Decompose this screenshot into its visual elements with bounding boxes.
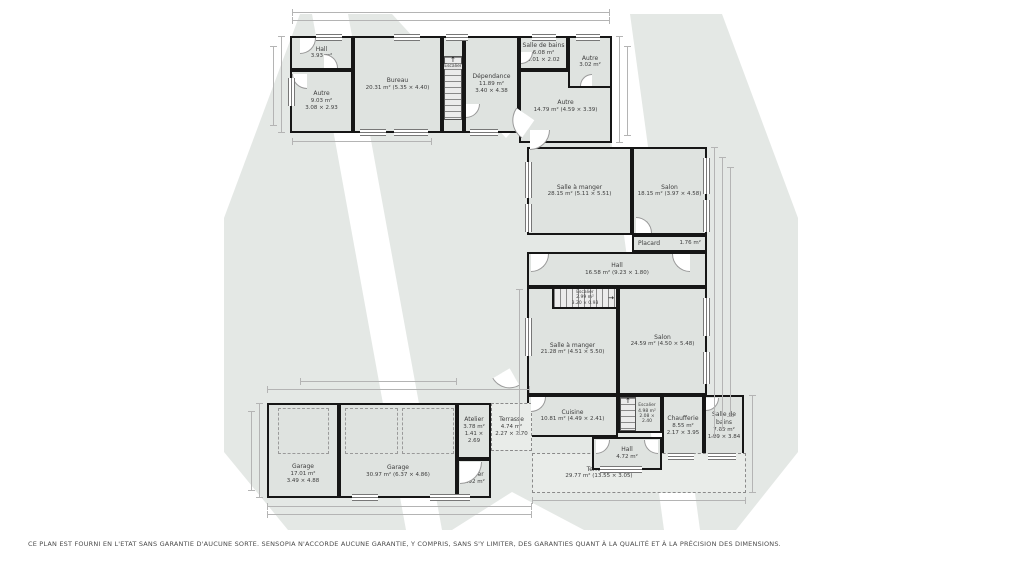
window	[470, 129, 498, 136]
dimension-line	[259, 403, 260, 498]
room-dims: 3.40 × 4.38	[475, 88, 508, 95]
room-label: Hall	[611, 262, 623, 270]
window	[703, 352, 710, 384]
room-label: Escalier	[576, 290, 594, 295]
room-area: 3.78 m²	[463, 424, 485, 431]
stairs-right-arrow-icon: →	[608, 295, 614, 302]
dimension-line	[730, 167, 731, 417]
room-label: Autre	[582, 55, 598, 63]
room-label: Bureau	[387, 77, 408, 85]
room-area: 3.02 m²	[579, 62, 601, 69]
room-label: Autre	[313, 90, 329, 98]
dimension-line	[627, 46, 628, 136]
room-area: 11.89 m²	[479, 81, 504, 88]
parking-spot-outline	[345, 408, 398, 454]
dimension-line	[722, 157, 723, 429]
room-area: 8.55 m²	[672, 423, 694, 430]
room-label: Garage	[387, 464, 409, 472]
room-area: 28.15 m² (5.11 × 5.51)	[548, 191, 612, 198]
room-terrasse-4: Terrasse4.74 m²2.27 × 2.70	[491, 403, 532, 451]
dimension-line	[273, 46, 274, 126]
sliding-door	[600, 466, 642, 473]
dimension-line	[532, 500, 746, 501]
dimension-line	[292, 141, 432, 142]
room-dims: 3.20 × 0.93	[572, 301, 599, 306]
window	[525, 318, 532, 356]
room-label: Cuisine	[562, 409, 584, 417]
dimension-line	[619, 36, 620, 143]
room-area: 21.28 m² (4.51 × 5.50)	[541, 349, 605, 356]
room-dims: 3.08 × 2.93	[305, 105, 338, 112]
dimension-line	[292, 20, 610, 21]
window	[394, 34, 420, 41]
room-area: 9.03 m²	[311, 98, 333, 105]
room-escalier-mid: Escalier2.99 m²3.20 × 0.93 →	[552, 287, 618, 309]
disclaimer-text: CE PLAN EST FOURNI EN L'ETAT SANS GARANT…	[28, 540, 1008, 548]
room-label: Salon	[654, 334, 671, 342]
room-area: 4.98 m²	[638, 409, 656, 414]
room-dims: 2.08 × 2.40	[634, 414, 660, 425]
room-salon-24: Salon24.59 m² (4.50 × 5.48)	[618, 287, 707, 395]
dimension-line	[300, 381, 457, 382]
dimension-line	[752, 395, 753, 493]
room-area: 29.77 m² (13.55 × 3.05)	[565, 473, 632, 480]
window	[525, 204, 532, 232]
dimension-line	[292, 12, 610, 13]
room-label: Salle de bains	[706, 411, 742, 427]
room-label: Escalier	[638, 403, 656, 408]
window	[668, 453, 694, 460]
dimension-line	[714, 147, 715, 437]
room-dims: 1.99 × 3.84	[708, 434, 741, 441]
stairs-up-arrow-icon: ↑	[450, 57, 456, 64]
dimension-line	[267, 514, 532, 515]
window	[394, 129, 428, 136]
room-area: 2.99 m²	[576, 295, 594, 300]
room-atelier-3: Atelier3.78 m²1.41 × 2.69	[457, 403, 491, 459]
parking-spot-outline	[402, 408, 454, 454]
room-area: 6.08 m²	[533, 50, 555, 57]
window	[703, 298, 710, 336]
window	[360, 129, 386, 136]
room-label: Salle à manger	[550, 342, 595, 350]
window	[352, 494, 378, 501]
room-area: 14.79 m² (4.59 × 3.39)	[534, 107, 598, 114]
room-label: Hall	[621, 446, 633, 454]
room-salle-a-manger-28: Salle à manger28.15 m² (5.11 × 5.51)	[527, 147, 632, 235]
room-area: 10.81 m² (4.49 × 2.41)	[541, 416, 605, 423]
window	[576, 34, 600, 41]
stairs-up-arrow-icon: ↑	[625, 398, 631, 405]
room-area: 24.59 m² (4.50 × 5.48)	[631, 341, 695, 348]
window	[525, 162, 532, 198]
floor-plan-canvas: Autre14.79 m² (4.59 × 3.39) Hall3.93 m² …	[0, 0, 1024, 576]
room-dims: 3.01 × 2.02	[527, 57, 560, 64]
room-label: Dépendance	[473, 73, 511, 81]
window	[430, 494, 470, 501]
room-area: 18.15 m² (3.97 × 4.58)	[638, 191, 702, 198]
dimension-line	[281, 36, 282, 133]
room-label: Hall	[316, 46, 328, 54]
room-label: Autre	[557, 99, 573, 107]
room-dims: 2.17 × 3.95	[667, 430, 700, 437]
room-label: Salle à manger	[557, 184, 602, 192]
room-label: Chaufferie	[667, 415, 698, 423]
staircase-low: ↑	[620, 397, 636, 431]
room-chaufferie: Chaufferie8.55 m²2.17 × 3.95	[662, 395, 704, 457]
window	[446, 34, 468, 41]
room-placard: Placard1.76 m²	[632, 235, 707, 252]
room-dependance: Dépendance11.89 m²3.40 × 4.38	[464, 36, 519, 133]
room-label: Salle de bains	[523, 42, 565, 50]
dimension-line	[519, 289, 520, 435]
window	[708, 453, 736, 460]
room-area: 4.72 m²	[616, 454, 638, 461]
window	[316, 34, 342, 41]
room-area: 1.76 m²	[679, 240, 701, 247]
room-area: 17.01 m²	[290, 471, 315, 478]
room-area: 30.97 m² (6.37 × 4.86)	[366, 472, 430, 479]
window	[703, 200, 710, 232]
window	[703, 158, 710, 194]
room-label: Garage	[292, 463, 314, 471]
room-dims: 3.49 × 4.88	[287, 478, 320, 485]
room-bureau: Bureau20.31 m² (5.35 × 4.40)	[353, 36, 442, 133]
stairs-label: Escalier	[444, 64, 462, 69]
dimension-line	[267, 506, 532, 507]
room-dims: 1.41 × 2.69	[459, 431, 489, 445]
room-label: Salon	[661, 184, 678, 192]
room-label: Atelier	[464, 416, 484, 424]
room-label: Placard	[638, 240, 660, 248]
parking-spot-outline	[278, 408, 329, 454]
staircase-top: ↑ Escalier	[444, 56, 462, 120]
dimension-line	[251, 411, 252, 491]
dimension-line	[267, 389, 530, 390]
window	[532, 34, 556, 41]
window	[288, 78, 295, 106]
room-area: 16.58 m² (9.23 × 1.80)	[585, 270, 649, 277]
room-label: Terrasse	[499, 416, 524, 424]
room-area: 20.31 m² (5.35 × 4.40)	[366, 85, 430, 92]
